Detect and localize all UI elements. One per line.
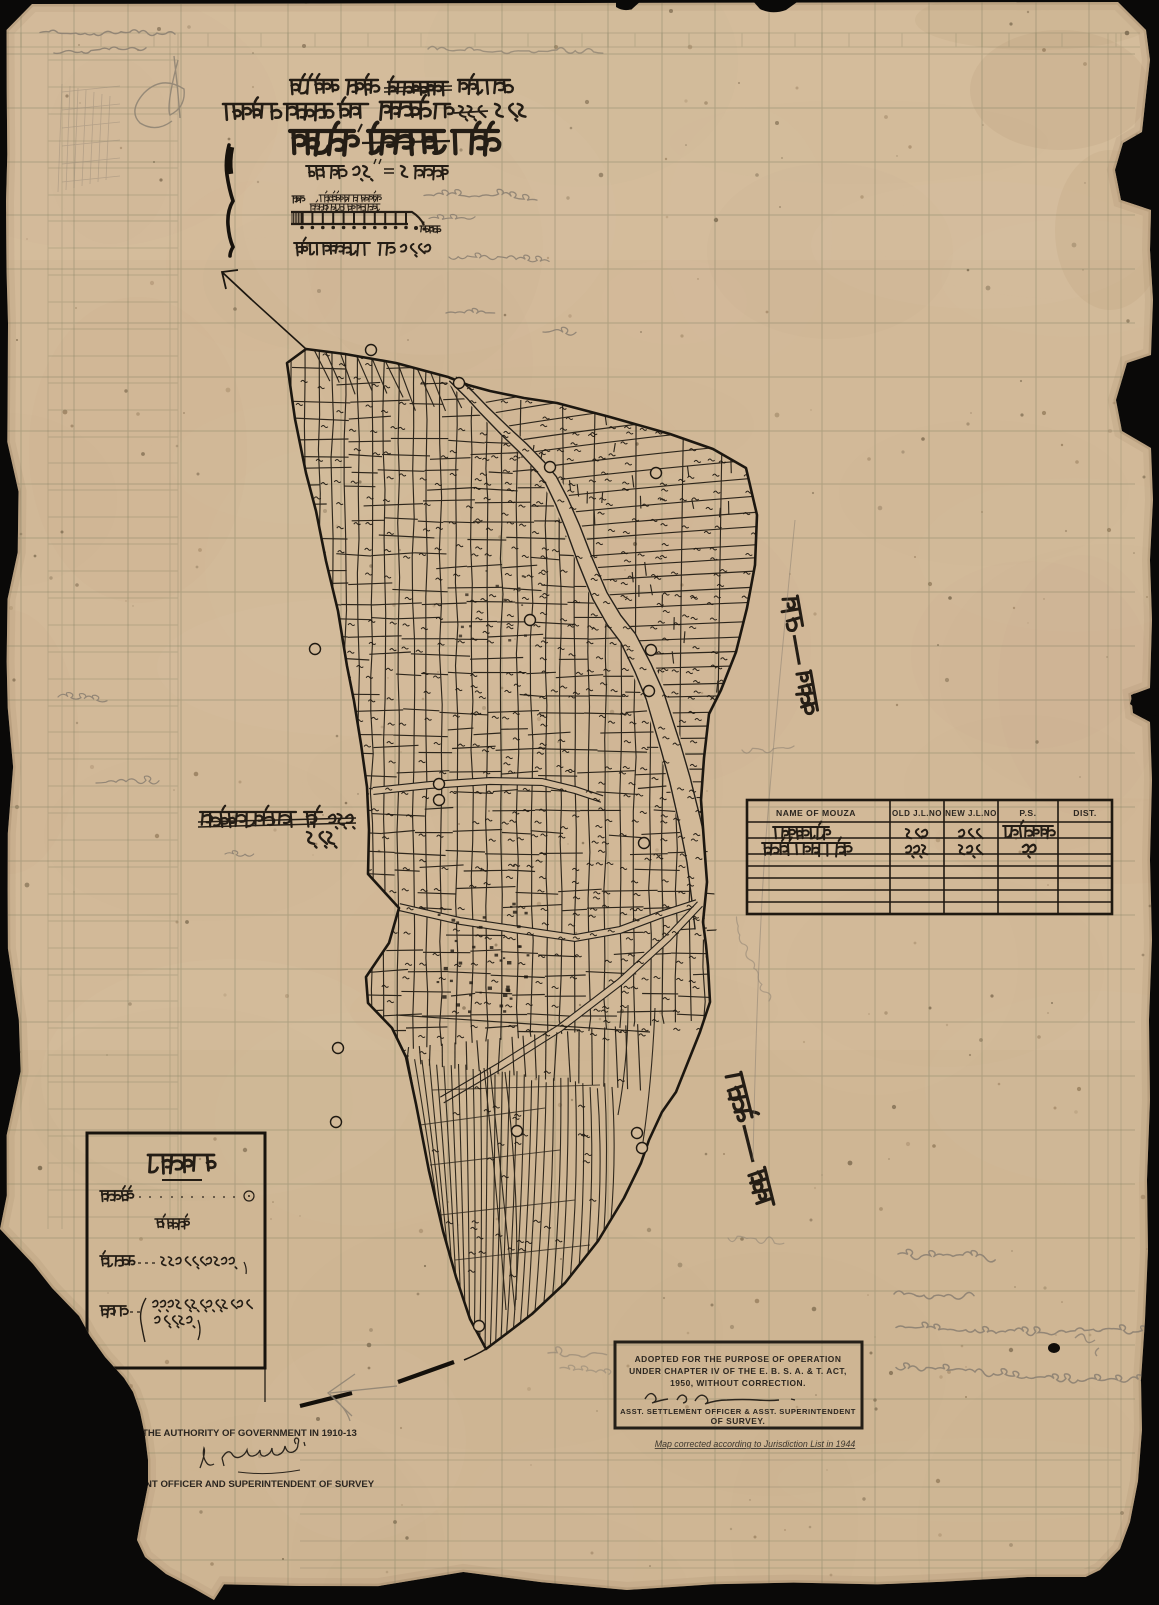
svg-text:OLD J.L.NO: OLD J.L.NO: [892, 809, 942, 818]
svg-text:P.S.: P.S.: [1019, 808, 1036, 818]
svg-text:OF SURVEY.: OF SURVEY.: [711, 1416, 766, 1426]
svg-text:ASST. SETTLEMENT OFFICER & ASS: ASST. SETTLEMENT OFFICER & ASST. SUPERIN…: [620, 1407, 856, 1416]
svg-text:ADOPTED FOR THE PURPOSE OF OPE: ADOPTED FOR THE PURPOSE OF OPERATION: [635, 1354, 842, 1364]
svg-text:Map corrected according to Jur: Map corrected according to Jurisdiction …: [655, 1439, 856, 1449]
svg-text:DIST.: DIST.: [1073, 808, 1097, 818]
svg-text:NAME OF MOUZA: NAME OF MOUZA: [776, 808, 856, 818]
svg-text:1950, WITHOUT CORRECTION.: 1950, WITHOUT CORRECTION.: [670, 1378, 806, 1388]
svg-text:NEW J.L.NO: NEW J.L.NO: [945, 809, 997, 818]
svg-text:UNDER CHAPTER IV OF THE E. B.: UNDER CHAPTER IV OF THE E. B. S. A. & T.…: [629, 1366, 847, 1376]
svg-text:NT OFFICER AND SUPERINTENDENT: NT OFFICER AND SUPERINTENDENT OF SURVEY: [145, 1479, 375, 1490]
svg-text:THE AUTHORITY OF GOVERNMENT IN: THE AUTHORITY OF GOVERNMENT IN 1910-13: [142, 1428, 357, 1439]
